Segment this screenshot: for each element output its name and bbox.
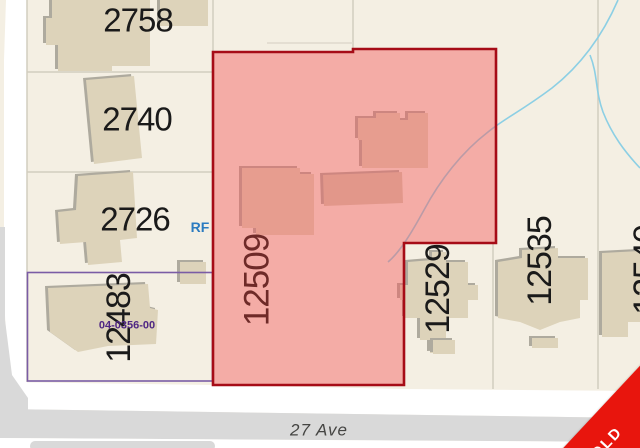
parcel-label-12529: 12529 (421, 244, 455, 334)
parcel-label-12535: 12535 (523, 216, 557, 306)
parcel-label-12540: 12540 (629, 225, 640, 315)
highlighted-parcel-12509[interactable] (213, 49, 496, 385)
folio-number-label: 04-0356-00 (99, 321, 155, 332)
parcel-label-12509: 12509 (240, 234, 275, 326)
parcel-map[interactable]: 2758 2740 2726 12483 12509 12529 12535 1… (0, 0, 640, 448)
parcel-label-2726: 2726 (100, 203, 169, 236)
corner-pavement (30, 441, 215, 448)
zoning-label: RF (191, 220, 210, 234)
street-name-label: 27 Ave (290, 422, 348, 439)
left-road (4, 0, 27, 394)
parcel-label-12483: 12483 (102, 273, 136, 363)
building-12535-annex (532, 338, 558, 348)
parcel-label-2758: 2758 (103, 4, 172, 37)
sold-ribbon-label: SOLD (579, 423, 625, 448)
building-12529-annex (433, 340, 455, 354)
parcel-label-2740: 2740 (102, 103, 171, 136)
